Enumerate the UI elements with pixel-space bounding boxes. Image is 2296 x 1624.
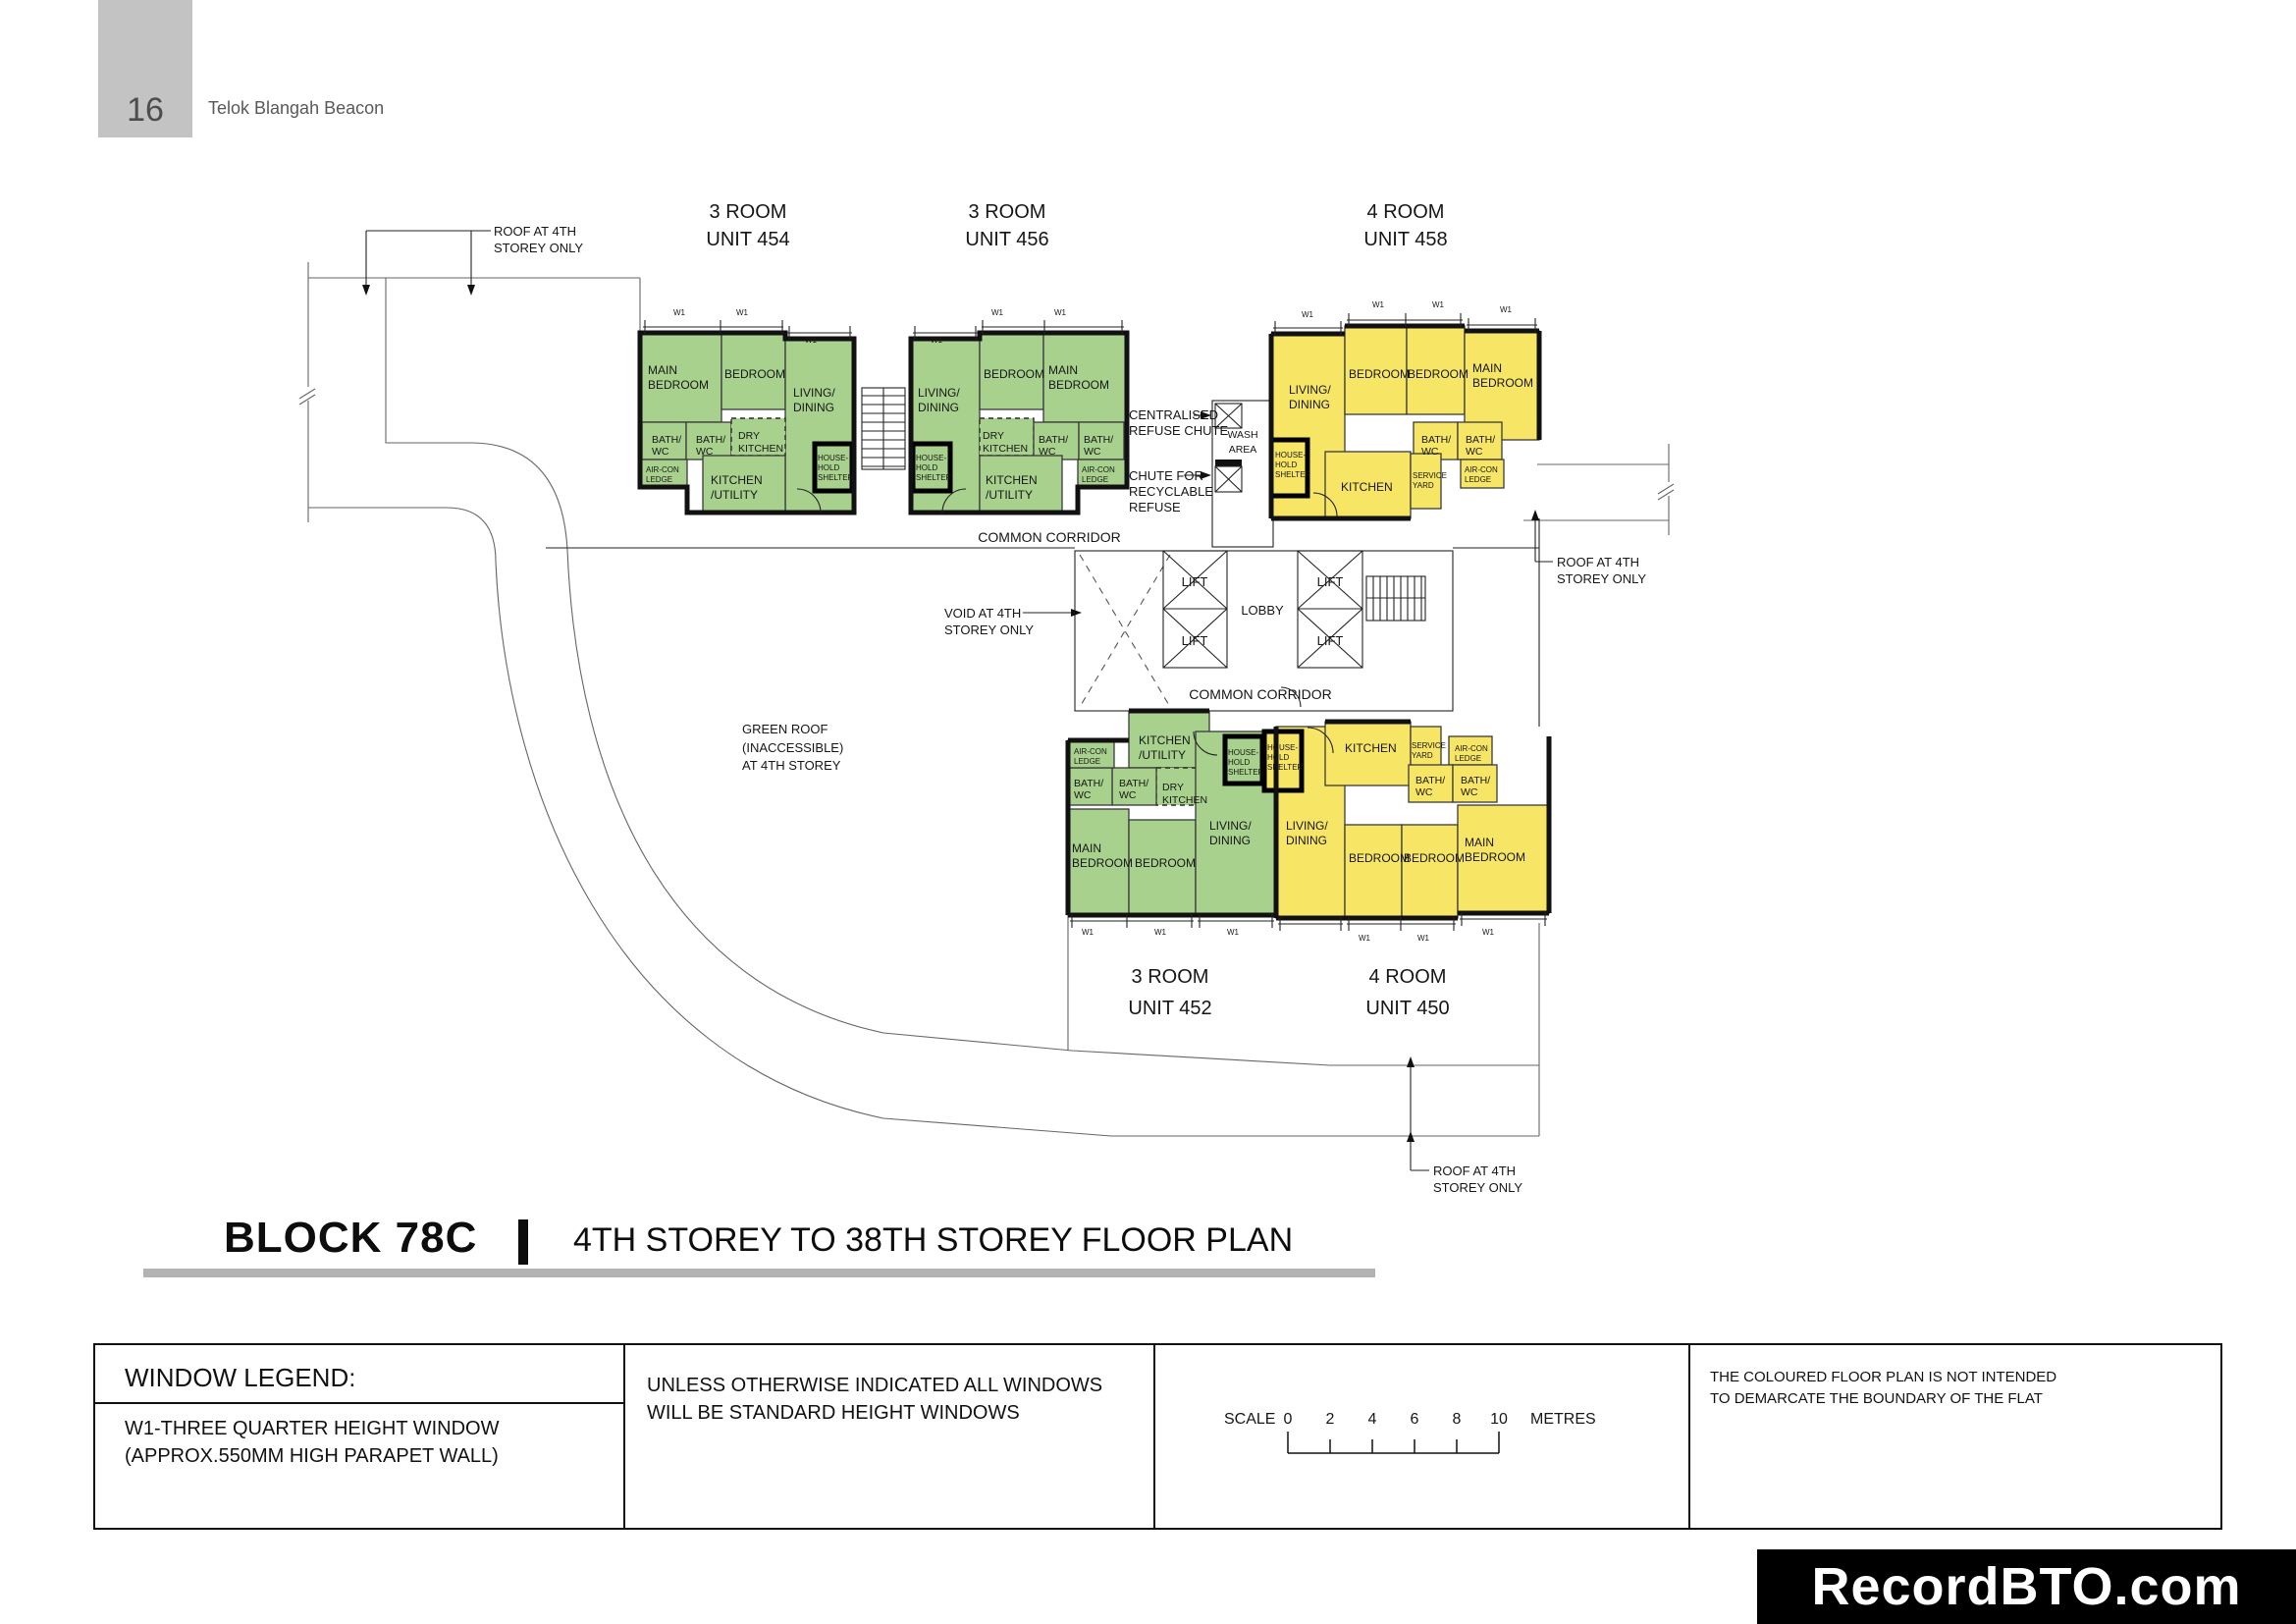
room-label: HOUSE- bbox=[1267, 743, 1298, 752]
room-label: WC bbox=[1415, 786, 1433, 798]
unit-title: UNIT 458 bbox=[1363, 229, 1447, 250]
scale-tick-label: 2 bbox=[1326, 1411, 1335, 1428]
room-label: DRY bbox=[1162, 782, 1184, 793]
room-label: KITCHEN bbox=[738, 443, 783, 455]
lobby-label: LOBBY bbox=[1241, 603, 1284, 618]
room-label: KITCHEN bbox=[1162, 794, 1207, 806]
room-label: LEDGE bbox=[1465, 475, 1491, 484]
w1-label: W1 bbox=[1054, 308, 1067, 317]
room-label: WC bbox=[1421, 446, 1439, 458]
green-roof-note: GREEN ROOF bbox=[742, 722, 828, 736]
unit-title: 4 ROOM bbox=[1367, 201, 1445, 223]
unit-456-plan: LIVING/ DINING BEDROOM MAIN BEDROOM DRY … bbox=[911, 308, 1127, 513]
watermark-banner: RecordBTO.com bbox=[1757, 1549, 2296, 1624]
floorplan-page: 16 Telok Blangah Beacon LIFT LIFT LIFT L… bbox=[0, 0, 2296, 1624]
drawing-title-block: BLOCK 78C 4TH STOREY TO 38TH STOREY FLOO… bbox=[143, 1214, 1419, 1272]
room-label: LIVING/ bbox=[1289, 383, 1331, 397]
room-label: BEDROOM bbox=[1349, 367, 1410, 381]
w1-label: W1 bbox=[1302, 310, 1314, 319]
room-label: AIR-CON bbox=[1074, 747, 1107, 756]
room-label: BEDROOM bbox=[1465, 850, 1525, 864]
title-underline-bar bbox=[143, 1269, 1375, 1277]
roof-note: STOREY ONLY bbox=[1557, 571, 1646, 586]
scale-tick-label: 10 bbox=[1490, 1411, 1508, 1428]
room-label: YARD bbox=[1413, 481, 1434, 490]
lift-label: LIFT bbox=[1182, 633, 1208, 648]
disclaimer-cell: THE COLOURED FLOOR PLAN IS NOT INTENDED … bbox=[1690, 1345, 2218, 1528]
room-label: SERVICE bbox=[1412, 741, 1446, 750]
w1-label: W1 bbox=[673, 308, 686, 317]
lift-label: LIFT bbox=[1317, 574, 1344, 589]
room-label: BEDROOM bbox=[1072, 856, 1133, 870]
room-label: HOUSE- bbox=[1228, 748, 1258, 757]
w1-definition-line2: (APPROX.550MM HIGH PARAPET WALL) bbox=[125, 1445, 499, 1468]
room-label: HOUSE- bbox=[818, 454, 848, 462]
window-legend-heading: WINDOW LEGEND: bbox=[125, 1363, 355, 1393]
roof-note: ROOF AT 4TH bbox=[1433, 1164, 1516, 1178]
scale-tick-label: 6 bbox=[1411, 1411, 1419, 1428]
room-label: WC bbox=[652, 446, 669, 458]
room-label: BATH/ bbox=[1461, 775, 1490, 786]
disclaimer-line1: THE COLOURED FLOOR PLAN IS NOT INTENDED bbox=[1710, 1369, 2056, 1385]
roof-note: ROOF AT 4TH bbox=[494, 224, 576, 239]
lift-shafts: LIFT LIFT LIFT LIFT LOBBY bbox=[1163, 551, 1362, 668]
room-label: MAIN bbox=[648, 363, 677, 377]
room-label: /UTILITY bbox=[986, 488, 1033, 502]
room-label: KITCHEN bbox=[1139, 733, 1191, 747]
roof-note: STOREY ONLY bbox=[1433, 1180, 1522, 1195]
room-label: WC bbox=[1039, 446, 1056, 458]
disclaimer-line2: TO DEMARCATE THE BOUNDARY OF THE FLAT bbox=[1710, 1390, 2043, 1407]
unit-450-plan: LIVING/ DINING BEDROOM BEDROOM MAIN BEDR… bbox=[1264, 722, 1549, 943]
room-label: LIVING/ bbox=[918, 386, 960, 400]
room-label: SHELTER bbox=[1267, 763, 1304, 772]
w1-label: W1 bbox=[1154, 928, 1167, 937]
unit-458-plan: LIVING/ DINING BEDROOM BEDROOM MAIN BEDR… bbox=[1271, 300, 1539, 518]
room-label: AIR-CON bbox=[1455, 744, 1488, 753]
room-label: DINING bbox=[1289, 398, 1330, 411]
room-label: BATH/ bbox=[1421, 434, 1451, 446]
room-label: WC bbox=[1461, 786, 1478, 798]
unit-454-plan: MAIN BEDROOM BEDROOM LIVING/ DINING BATH… bbox=[640, 308, 854, 513]
w1-label: W1 bbox=[1082, 928, 1095, 937]
room-label: DINING bbox=[1209, 834, 1251, 847]
scale-cell: SCALE 0 2 4 6 8 10 METRES bbox=[1155, 1345, 1690, 1528]
room-label: BEDROOM bbox=[1404, 851, 1465, 865]
refuse-chute-note: REFUSE CHUTE bbox=[1129, 423, 1228, 438]
room-label: BATH/ bbox=[1039, 434, 1068, 446]
room-label: KITCHEN bbox=[983, 443, 1028, 455]
window-legend-cell: WINDOW LEGEND: W1-THREE QUARTER HEIGHT W… bbox=[95, 1345, 625, 1528]
room-label: DINING bbox=[1286, 834, 1327, 847]
room-label: HOLD bbox=[1275, 460, 1297, 469]
green-roof-note: (INACCESSIBLE) bbox=[742, 740, 843, 755]
w1-label: W1 bbox=[1417, 934, 1430, 943]
unit-title: 3 ROOM bbox=[710, 201, 787, 223]
unit-title: 3 ROOM bbox=[969, 201, 1046, 223]
wash-area-label: AREA bbox=[1229, 444, 1257, 456]
room-label: LIVING/ bbox=[1209, 819, 1252, 833]
window-note-line2: WILL BE STANDARD HEIGHT WINDOWS bbox=[647, 1402, 1020, 1425]
lift-label: LIFT bbox=[1182, 574, 1208, 589]
window-note-line1: UNLESS OTHERWISE INDICATED ALL WINDOWS bbox=[647, 1375, 1102, 1397]
w1-label: W1 bbox=[1482, 928, 1495, 937]
room-label: LEDGE bbox=[646, 475, 672, 484]
room-label: HOLD bbox=[818, 463, 839, 472]
room-label: LEDGE bbox=[1074, 757, 1100, 766]
scale-tick-label: 4 bbox=[1368, 1411, 1377, 1428]
w1-label: W1 bbox=[1432, 300, 1445, 309]
room-label: /UTILITY bbox=[711, 488, 758, 502]
room-label: KITCHEN bbox=[1341, 480, 1393, 494]
w1-definition-line1: W1-THREE QUARTER HEIGHT WINDOW bbox=[125, 1418, 499, 1440]
roof-note: STOREY ONLY bbox=[494, 241, 583, 255]
room-label: WC bbox=[1084, 446, 1101, 458]
room-label: SHELTER bbox=[818, 473, 854, 482]
room-label: HOLD bbox=[1267, 753, 1289, 762]
room-label: HOLD bbox=[916, 463, 937, 472]
room-label: MAIN bbox=[1048, 363, 1078, 377]
unit-title: UNIT 456 bbox=[965, 229, 1048, 250]
room-label: SHELTER bbox=[1275, 470, 1311, 479]
common-corridor-label: COMMON CORRIDOR bbox=[978, 529, 1120, 545]
unit-452-plan: KITCHEN /UTILITY DRY KITCHEN BATH/ WC BA… bbox=[1068, 711, 1276, 937]
recyclable-chute-note: RECYCLABLE bbox=[1129, 484, 1213, 499]
w1-label: W1 bbox=[931, 336, 943, 345]
room-label: KITCHEN bbox=[986, 473, 1038, 487]
w1-label: W1 bbox=[1500, 305, 1513, 314]
room-label: BATH/ bbox=[1466, 434, 1495, 446]
room-label: BEDROOM bbox=[724, 367, 785, 381]
room-label: BATH/ bbox=[1074, 778, 1103, 789]
scale-unit-label: METRES bbox=[1530, 1411, 1596, 1428]
recyclable-chute-note: REFUSE bbox=[1129, 500, 1181, 514]
unit-title: UNIT 452 bbox=[1128, 998, 1211, 1019]
storey-subtitle: 4TH STOREY TO 38TH STOREY FLOOR PLAN bbox=[573, 1221, 1293, 1260]
room-label: WC bbox=[696, 446, 714, 458]
room-label: HOUSE- bbox=[1275, 451, 1306, 460]
w1-label: W1 bbox=[1359, 934, 1371, 943]
green-roof-note: AT 4TH STOREY bbox=[742, 758, 841, 773]
legend-divider bbox=[95, 1402, 623, 1404]
unit-title: UNIT 454 bbox=[706, 229, 789, 250]
room-label: HOUSE- bbox=[916, 454, 946, 462]
room-label: DRY bbox=[983, 430, 1004, 442]
room-label: BEDROOM bbox=[1349, 851, 1410, 865]
w1-label: W1 bbox=[991, 308, 1004, 317]
wash-area-label: WASH bbox=[1227, 429, 1257, 441]
room-label: BEDROOM bbox=[1472, 376, 1533, 390]
scale-label: SCALE bbox=[1224, 1411, 1275, 1428]
room-label: AIR-CON bbox=[1082, 465, 1115, 474]
room-label: HOLD bbox=[1228, 758, 1250, 767]
void-note: STOREY ONLY bbox=[944, 623, 1034, 637]
room-label: AIR-CON bbox=[646, 465, 679, 474]
scale-tick-label: 0 bbox=[1284, 1411, 1293, 1428]
scale-bar: SCALE 0 2 4 6 8 10 METRES bbox=[1214, 1402, 1666, 1471]
room-label: BATH/ bbox=[1119, 778, 1148, 789]
room-label: SERVICE bbox=[1413, 471, 1447, 480]
watermark-text: RecordBTO.com bbox=[1811, 1556, 2241, 1617]
room-label: YARD bbox=[1412, 751, 1433, 760]
scale-tick-label: 8 bbox=[1453, 1411, 1462, 1428]
room-label: DINING bbox=[793, 401, 834, 414]
room-label: BEDROOM bbox=[984, 367, 1044, 381]
room-label: MAIN bbox=[1072, 841, 1101, 855]
room-label: WC bbox=[1074, 789, 1092, 801]
w1-label: W1 bbox=[736, 308, 749, 317]
unit-title: 4 ROOM bbox=[1369, 966, 1447, 988]
room-label: SHELTER bbox=[916, 473, 952, 482]
room-label: KITCHEN bbox=[711, 473, 763, 487]
corridor-lines bbox=[546, 518, 1539, 727]
block-title: BLOCK 78C bbox=[224, 1214, 477, 1263]
room-label: BEDROOM bbox=[648, 378, 709, 392]
w1-label: W1 bbox=[1372, 300, 1385, 309]
w1-label: W1 bbox=[805, 336, 818, 345]
room-label: DRY bbox=[738, 430, 760, 442]
unit-title: UNIT 450 bbox=[1365, 998, 1449, 1019]
room-label: BATH/ bbox=[652, 434, 681, 446]
room-label: WC bbox=[1119, 789, 1137, 801]
room-label: WC bbox=[1466, 446, 1483, 458]
room-label: BEDROOM bbox=[1048, 378, 1109, 392]
room-label: KITCHEN bbox=[1345, 741, 1397, 755]
unit-title: 3 ROOM bbox=[1132, 966, 1209, 988]
legend-table: WINDOW LEGEND: W1-THREE QUARTER HEIGHT W… bbox=[93, 1343, 2222, 1530]
room-label: LEDGE bbox=[1082, 475, 1108, 484]
title-separator bbox=[518, 1219, 528, 1265]
room-label: BATH/ bbox=[696, 434, 725, 446]
scale-ruler bbox=[1288, 1432, 1499, 1453]
room-label: LIVING/ bbox=[793, 386, 835, 400]
room-label: /UTILITY bbox=[1139, 748, 1186, 762]
w1-label: W1 bbox=[1227, 928, 1240, 937]
room-label: BATH/ bbox=[1415, 775, 1445, 786]
room-label: BEDROOM bbox=[1408, 367, 1468, 381]
window-note-cell: UNLESS OTHERWISE INDICATED ALL WINDOWS W… bbox=[625, 1345, 1155, 1528]
room-label: MAIN bbox=[1465, 836, 1494, 849]
common-corridor-label: COMMON CORRIDOR bbox=[1189, 686, 1331, 702]
void-note: VOID AT 4TH bbox=[944, 606, 1021, 621]
room-label: BEDROOM bbox=[1135, 856, 1196, 870]
room-label: AIR-CON bbox=[1465, 465, 1498, 474]
room-label: LIVING/ bbox=[1286, 819, 1328, 833]
room-label: MAIN bbox=[1472, 361, 1502, 375]
room-label: BATH/ bbox=[1084, 434, 1113, 446]
room-label: SHELTER bbox=[1228, 768, 1264, 777]
room-label: DINING bbox=[918, 401, 959, 414]
roof-note: ROOF AT 4TH bbox=[1557, 555, 1639, 569]
room-label: LEDGE bbox=[1455, 754, 1481, 763]
lift-label: LIFT bbox=[1317, 633, 1344, 648]
